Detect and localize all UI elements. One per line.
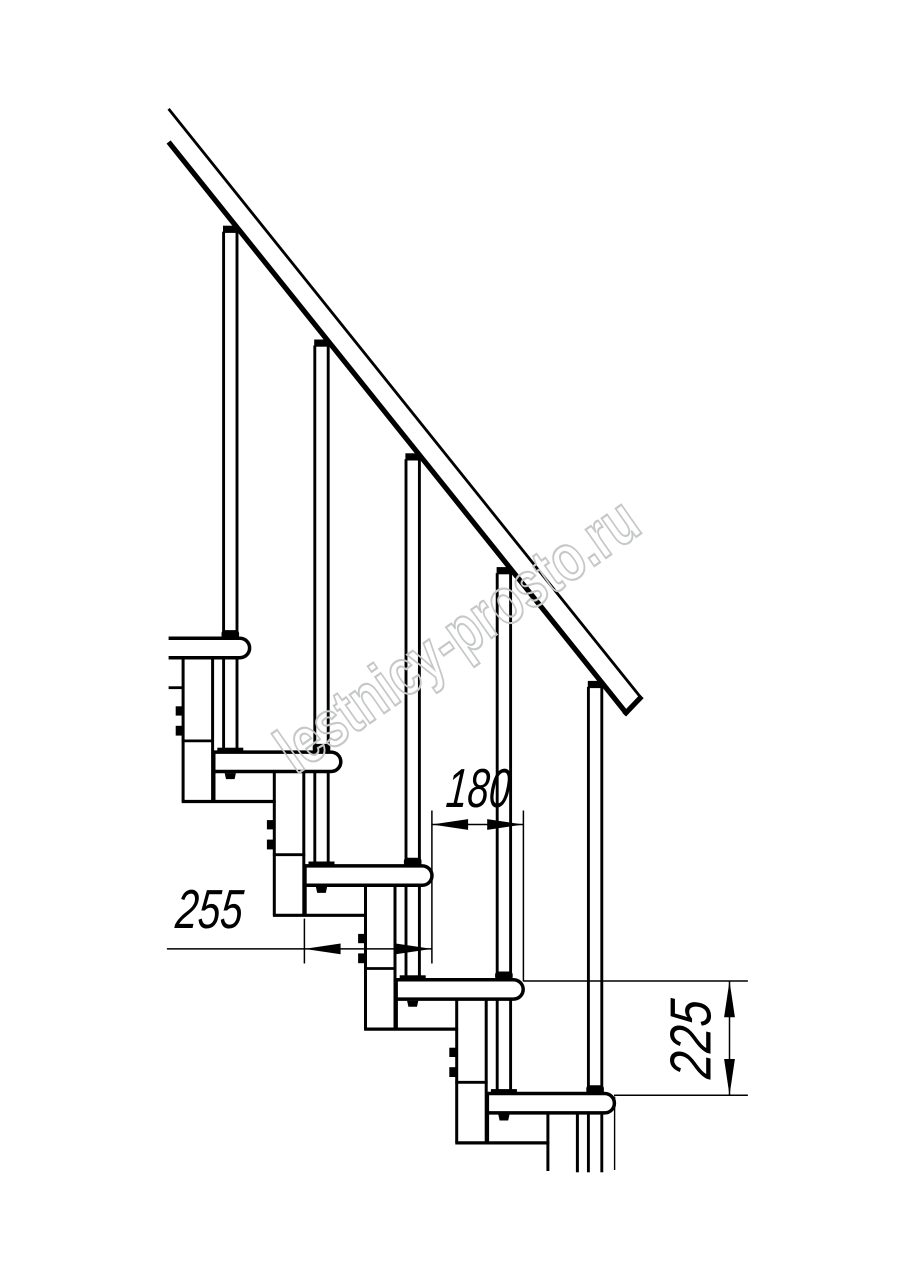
svg-text:180: 180 — [444, 757, 514, 819]
svg-text:225: 225 — [659, 996, 724, 1081]
svg-text:255: 255 — [173, 878, 246, 940]
